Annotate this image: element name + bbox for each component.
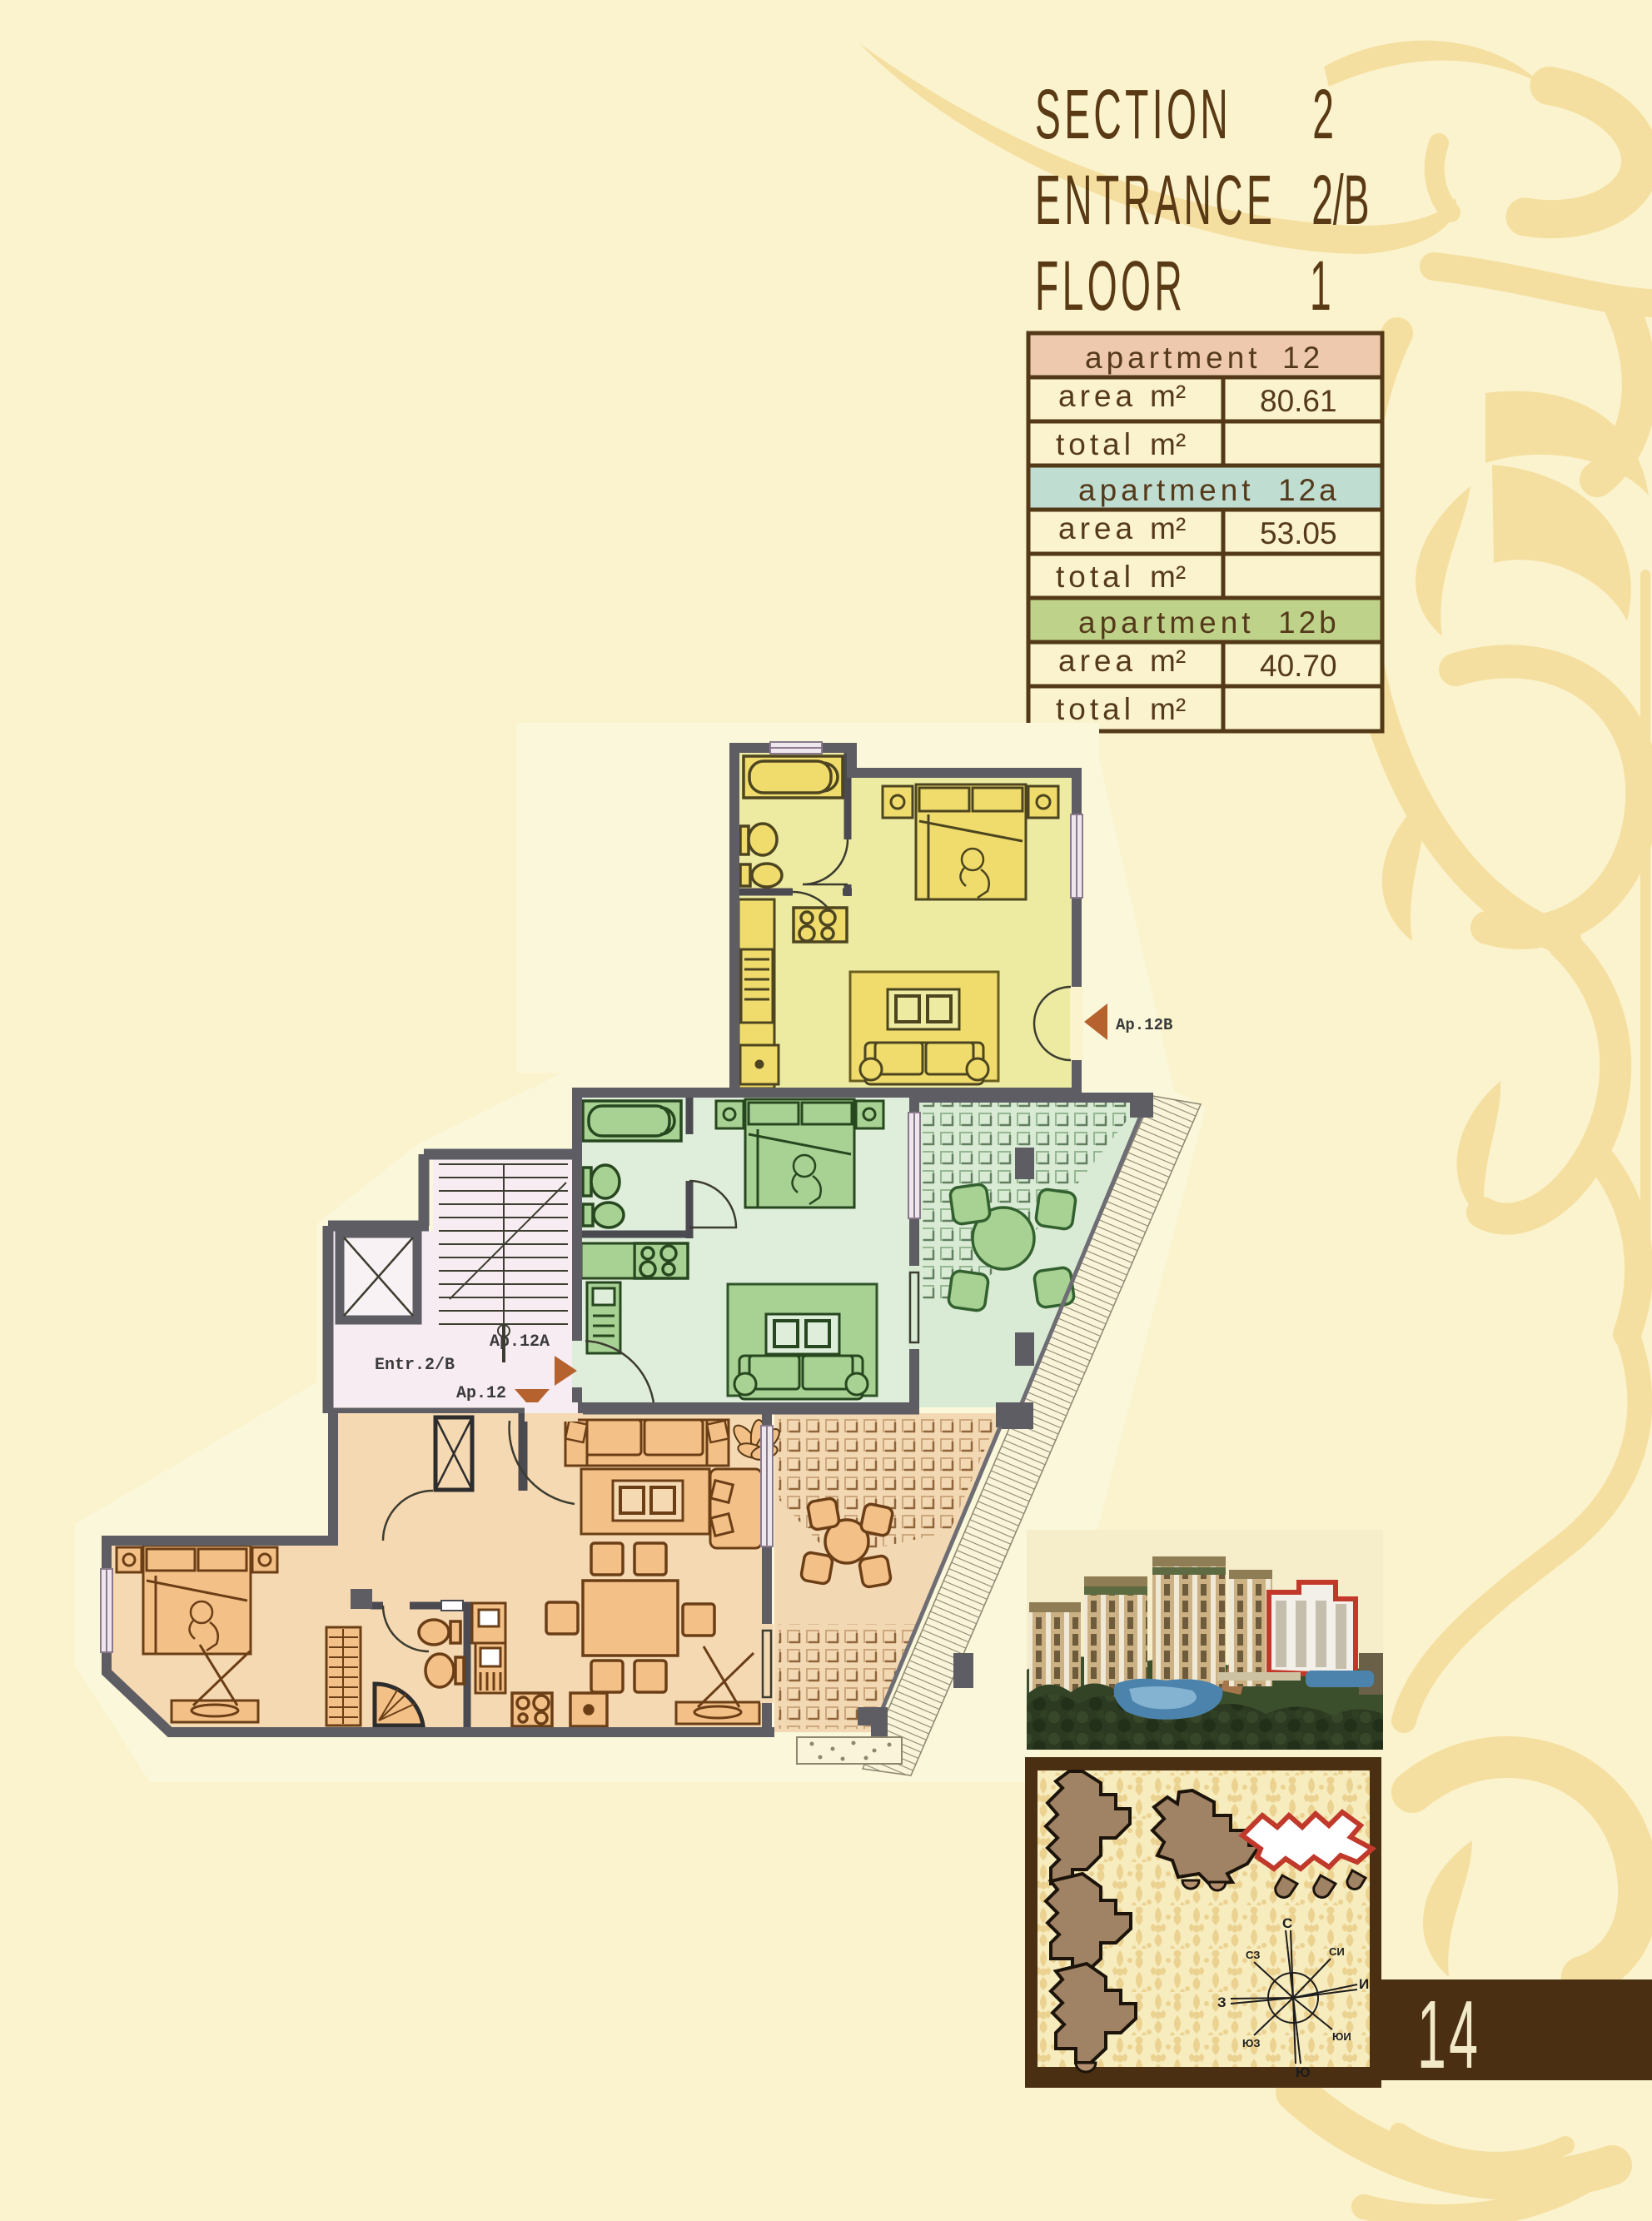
svg-text:area: area [1058,379,1137,413]
svg-text:area: area [1058,644,1137,678]
svg-text:m²: m² [1150,379,1186,413]
svg-text:Ap.12B: Ap.12B [1116,1016,1172,1034]
svg-text:Ap.12A: Ap.12A [490,1332,550,1352]
svg-text:total: total [1056,427,1135,461]
svg-text:53.05: 53.05 [1260,516,1337,550]
svg-text:m²: m² [1150,427,1186,461]
svg-text:С: С [1282,1915,1292,1931]
svg-text:12: 12 [1282,341,1323,375]
svg-text:2/B: 2/B [1311,162,1369,240]
svg-text:total: total [1056,560,1135,594]
svg-text:ЮИ: ЮИ [1332,2030,1351,2043]
svg-text:SECTION: SECTION [1035,77,1232,154]
svg-text:З: З [1217,1994,1227,2010]
svg-text:Entr.2/B: Entr.2/B [375,1356,455,1375]
svg-text:ЮЗ: ЮЗ [1242,2037,1261,2049]
svg-text:apartment: apartment [1085,341,1261,375]
svg-text:12b: 12b [1278,605,1340,640]
svg-text:m²: m² [1150,511,1186,545]
svg-text:СЗ: СЗ [1246,1949,1260,1961]
svg-text:2: 2 [1312,77,1334,154]
svg-text:Ю: Ю [1296,2064,1311,2080]
svg-text:apartment: apartment [1078,473,1255,507]
svg-text:Ap.12: Ap.12 [456,1384,506,1403]
svg-text:m²: m² [1150,560,1186,594]
svg-text:ENTRANCE: ENTRANCE [1035,162,1276,240]
svg-text:И: И [1359,1976,1369,1992]
svg-text:m²: m² [1150,692,1186,726]
svg-text:12a: 12a [1278,473,1340,507]
svg-text:FLOOR: FLOOR [1035,248,1186,326]
svg-text:14: 14 [1417,1980,1480,2088]
svg-text:total: total [1056,692,1135,726]
svg-text:40.70: 40.70 [1260,649,1337,683]
svg-text:80.61: 80.61 [1260,384,1337,418]
svg-text:m²: m² [1150,644,1186,678]
svg-text:СИ: СИ [1329,1945,1345,1958]
svg-text:1: 1 [1310,248,1331,326]
svg-text:apartment: apartment [1078,605,1255,640]
svg-text:area: area [1058,511,1137,545]
